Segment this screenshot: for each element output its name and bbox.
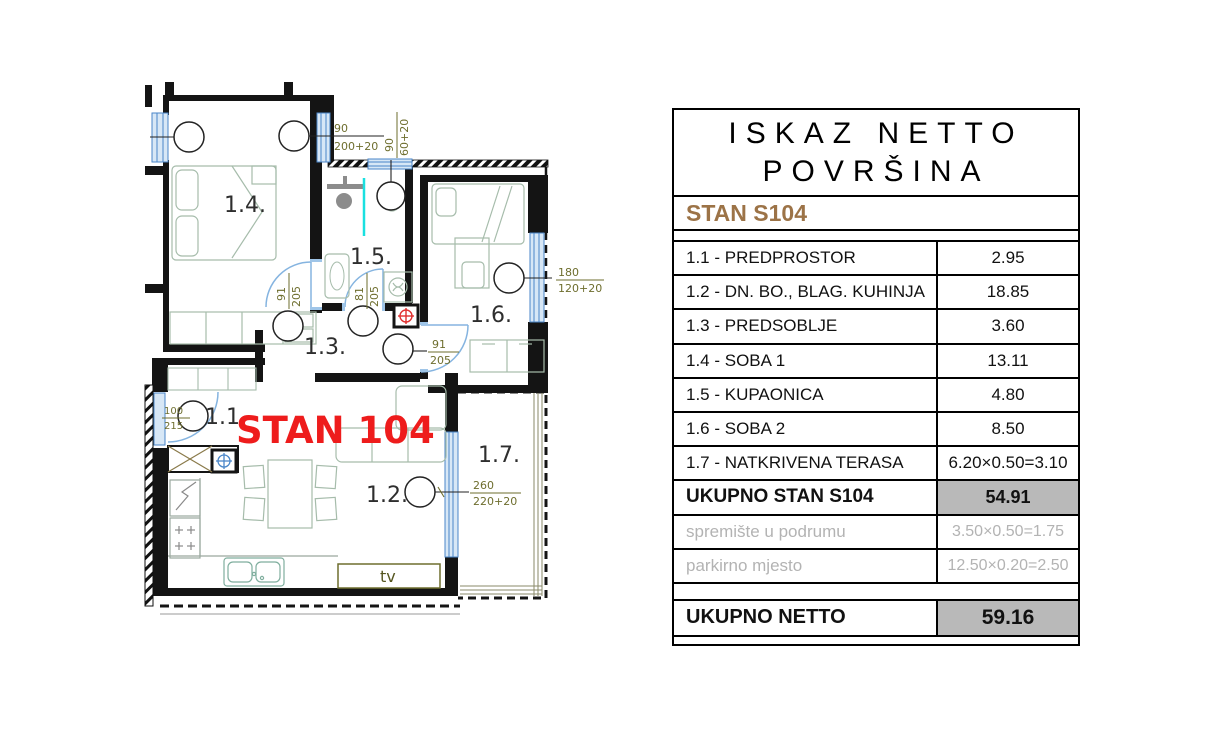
- table-title: ISKAZ NETTO POVRŠINA: [674, 110, 1078, 197]
- svg-text:91: 91: [432, 338, 446, 351]
- room-area-value: 13.11: [936, 345, 1078, 377]
- room-area-value: 12.50×0.20=2.50: [936, 550, 1078, 582]
- stan-header: STAN S104: [674, 197, 1078, 231]
- svg-text:90: 90: [334, 122, 348, 135]
- dim-door-soba1: 91 205: [275, 273, 303, 309]
- unit-label: STAN 104: [236, 409, 435, 452]
- dim-win-soba2: 180 120+20: [556, 266, 604, 295]
- area-table-panel: ISKAZ NETTO POVRŠINA STAN S104 1.1 - PRE…: [672, 108, 1080, 646]
- stove-burners: [175, 526, 195, 550]
- svg-text:260: 260: [473, 479, 494, 492]
- dim-win-main: 90 200+20: [334, 122, 378, 153]
- dining-set: [243, 460, 336, 528]
- shower-head-icon: [336, 193, 352, 209]
- table-row: 1.5 - KUPAONICA 4.80: [674, 379, 1078, 413]
- table-row: UKUPNO STAN S104 54.91: [674, 481, 1078, 515]
- table-row: parkirno mjesto 12.50×0.20=2.50: [674, 550, 1078, 584]
- table-row: 1.6 - SOBA 2 8.50: [674, 413, 1078, 447]
- svg-text:100: 100: [164, 406, 183, 417]
- svg-text:180: 180: [558, 266, 579, 279]
- room-area-label: parkirno mjesto: [674, 550, 936, 582]
- table-gap: [674, 584, 1078, 601]
- stan-header-label: STAN S104: [686, 200, 807, 227]
- table-row: 1.7 - NATKRIVENA TERASA 6.20×0.50=3.10: [674, 447, 1078, 481]
- room-area-label: spremište u podrumu: [674, 516, 936, 548]
- svg-text:81: 81: [353, 287, 366, 301]
- room-label-1-2: 1.2.: [366, 483, 408, 508]
- table-row: 1.3 - PREDSOBLJE 3.60: [674, 310, 1078, 344]
- svg-text:90: 90: [383, 138, 396, 152]
- svg-text:60+20: 60+20: [398, 119, 411, 156]
- room-area-value: 18.85: [936, 276, 1078, 308]
- svg-text:205: 205: [290, 286, 303, 307]
- table-title-line1: ISKAZ NETTO: [728, 115, 1023, 153]
- window-bedroom-top: [317, 113, 330, 162]
- room-label-1-6: 1.6.: [470, 303, 512, 328]
- room-area-label: 1.2 - DN. BO., BLAG. KUHINJA: [674, 276, 936, 308]
- table-gap: [674, 231, 1078, 242]
- shower-bar: [327, 184, 363, 189]
- room-area-label: 1.7 - NATKRIVENA TERASA: [674, 447, 936, 479]
- floor-plan-drawing: tv 90 200+20: [0, 0, 670, 754]
- room-area-value: 3.60: [936, 310, 1078, 342]
- svg-text:200+20: 200+20: [334, 140, 378, 153]
- room-label-1-4: 1.4.: [224, 193, 266, 218]
- room-area-value: 54.91: [936, 481, 1078, 513]
- room-area-value: 8.50: [936, 413, 1078, 445]
- room-label-1-3: 1.3.: [304, 335, 346, 360]
- entry-closet-row: [168, 368, 256, 390]
- room-area-label: 1.4 - SOBA 1: [674, 345, 936, 377]
- table-bottom-pad: [674, 637, 1078, 644]
- room-area-label: 1.5 - KUPAONICA: [674, 379, 936, 411]
- dim-door-soba2: 91 205: [428, 338, 459, 367]
- fridge-icon: [170, 480, 200, 516]
- room-area-label: 1.3 - PREDSOBLJE: [674, 310, 936, 342]
- kitchen-sink-icon: [224, 558, 284, 586]
- svg-text:205: 205: [430, 354, 451, 367]
- room-area-label: UKUPNO STAN S104: [674, 481, 936, 513]
- svg-text:205: 205: [368, 286, 381, 307]
- svg-text:215: 215: [164, 421, 183, 432]
- room-area-label: 1.6 - SOBA 2: [674, 413, 936, 445]
- svg-text:120+20: 120+20: [558, 282, 602, 295]
- netto-total-value: 59.16: [936, 601, 1078, 635]
- netto-total-row: UKUPNO NETTO 59.16: [674, 601, 1078, 637]
- table-row: 1.2 - DN. BO., BLAG. KUHINJA 18.85: [674, 276, 1078, 310]
- floor-plan-area: tv 90 200+20: [0, 0, 670, 754]
- floorplan-sheet: tv 90 200+20: [0, 0, 1229, 754]
- table-row: 1.1 - PREDPROSTOR 2.95: [674, 242, 1078, 276]
- tv-label: tv: [380, 567, 396, 586]
- dim-door-terrace: 260 220+20: [470, 479, 521, 508]
- room-area-value: 2.95: [936, 242, 1078, 274]
- dim-win-bath: 90 60+20: [383, 112, 411, 158]
- sink-bath: [325, 254, 349, 298]
- svg-text:91: 91: [275, 287, 288, 301]
- area-table-rows: 1.1 - PREDPROSTOR 2.95 1.2 - DN. BO., BL…: [674, 242, 1078, 584]
- room-label-1-7: 1.7.: [478, 443, 520, 468]
- table-row: spremište u podrumu 3.50×0.50=1.75: [674, 516, 1078, 550]
- room-area-label: 1.1 - PREDPROSTOR: [674, 242, 936, 274]
- table-row: 1.4 - SOBA 1 13.11: [674, 345, 1078, 379]
- window-terrace-door: [445, 432, 458, 557]
- table-title-line2: POVRŠINA: [762, 153, 989, 191]
- room-area-value: 4.80: [936, 379, 1078, 411]
- netto-total-label: UKUPNO NETTO: [674, 601, 936, 635]
- shaft-entry: [212, 450, 236, 472]
- room-area-value: 6.20×0.50=3.10: [936, 447, 1078, 479]
- room-area-value: 3.50×0.50=1.75: [936, 516, 1078, 548]
- tv-cabinet: tv: [338, 564, 440, 588]
- stove-icon: [170, 518, 200, 558]
- window-bathroom: [368, 159, 412, 169]
- svg-text:220+20: 220+20: [473, 495, 517, 508]
- shaft-vent: [394, 305, 418, 327]
- room-label-1-5: 1.5.: [350, 245, 392, 270]
